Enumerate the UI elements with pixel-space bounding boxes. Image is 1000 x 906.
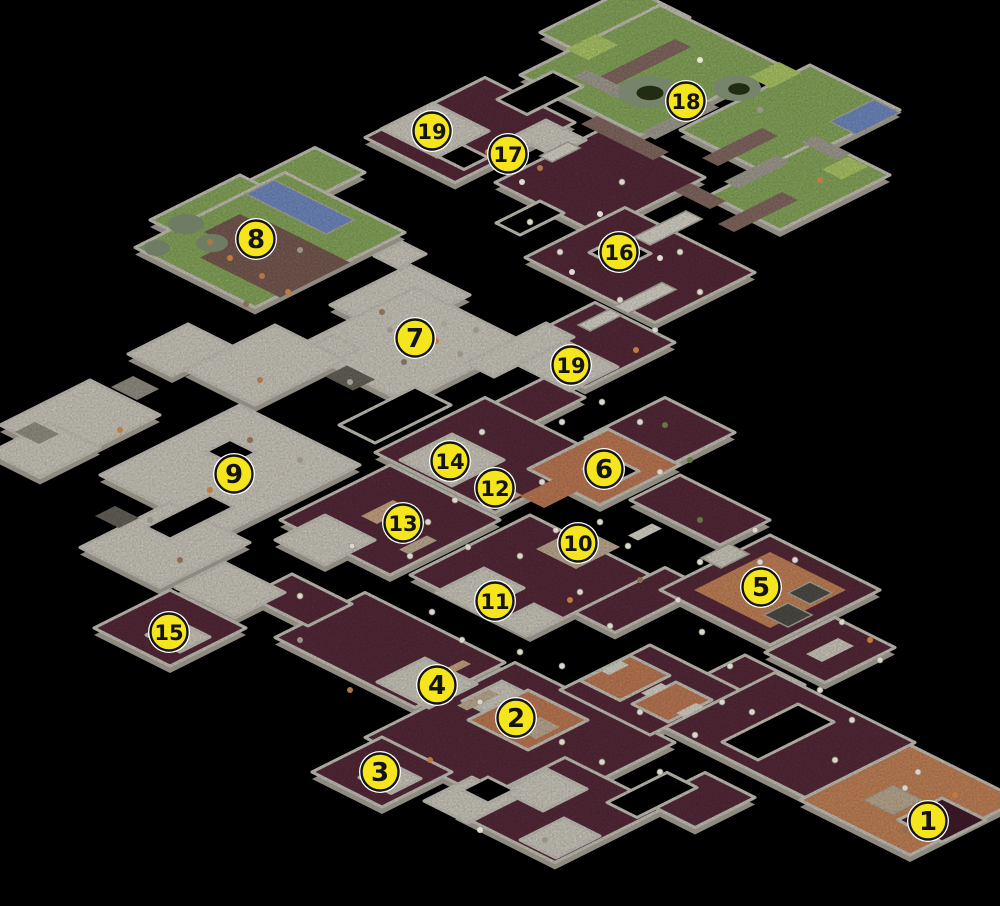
debris-5: [457, 351, 463, 357]
debris-12: [243, 301, 249, 307]
pillar-45: [792, 557, 798, 563]
debris-2: [441, 321, 447, 327]
debris-32: [817, 177, 823, 183]
pillar-23: [652, 327, 658, 333]
debris-45: [297, 637, 303, 643]
marker-label-4: 4: [428, 671, 446, 701]
pillar-25: [527, 219, 533, 225]
debris-35: [697, 517, 703, 523]
map-marker-10: 10: [557, 522, 599, 564]
region-room10-bed: [628, 524, 662, 541]
debris-41: [542, 837, 548, 843]
marker-label-8: 8: [247, 225, 265, 255]
debris-43: [427, 757, 433, 763]
pillar-12: [675, 597, 681, 603]
pillar-29: [477, 699, 483, 705]
pillar-50: [902, 785, 908, 791]
debris-3: [401, 359, 407, 365]
tree-garden-1-core: [637, 86, 664, 100]
pillar-1: [425, 519, 431, 525]
map-marker-19a: 19: [411, 110, 453, 152]
debris-38: [867, 637, 873, 643]
pillar-33: [719, 699, 725, 705]
map-marker-11: 11: [474, 580, 516, 622]
marker-label-1: 1: [919, 807, 937, 837]
map-marker-19b: 19: [550, 344, 592, 386]
pillar-43: [297, 593, 303, 599]
pillar-49: [832, 757, 838, 763]
pillar-19: [559, 419, 565, 425]
pillar-47: [692, 732, 698, 738]
debris-27: [257, 377, 263, 383]
marker-label-19a: 19: [417, 120, 446, 144]
map-svg: 1234567891011121314151617181919: [0, 0, 1000, 906]
debris-30: [697, 57, 703, 63]
pillar-24: [557, 249, 563, 255]
debris-9: [227, 255, 233, 261]
debris-29: [177, 557, 183, 563]
pillar-28: [697, 289, 703, 295]
marker-label-16: 16: [604, 241, 633, 265]
debris-24: [207, 487, 213, 493]
pillar-46: [637, 709, 643, 715]
pillar-4: [553, 527, 559, 533]
debris-31: [757, 107, 763, 113]
pillar-44: [752, 527, 758, 533]
pillar-0: [452, 497, 458, 503]
map-marker-13: 13: [382, 502, 424, 544]
map-marker-14: 14: [429, 440, 471, 482]
pillar-3: [517, 553, 523, 559]
debris-36: [662, 422, 668, 428]
pillar-38: [915, 769, 921, 775]
pillar-31: [599, 759, 605, 765]
marker-label-5: 5: [752, 573, 770, 603]
pillar-42: [407, 553, 413, 559]
marker-label-12: 12: [480, 477, 509, 501]
debris-28: [297, 457, 303, 463]
pillar-40: [577, 589, 583, 595]
marker-label-6: 6: [595, 455, 613, 485]
pillar-30: [559, 739, 565, 745]
pillar-17: [637, 419, 643, 425]
pillar-9: [517, 649, 523, 655]
map-marker-5: 5: [740, 566, 782, 608]
debris-16: [519, 179, 525, 185]
pillar-6: [625, 543, 631, 549]
debris-20: [657, 255, 663, 261]
marker-label-19b: 19: [556, 354, 585, 378]
debris-37: [687, 457, 693, 463]
debris-39: [902, 827, 908, 833]
pillar-37: [877, 657, 883, 663]
tree-garden-2-core: [728, 83, 750, 95]
debris-21: [597, 211, 603, 217]
marker-label-10: 10: [563, 532, 592, 556]
pillar-36: [839, 619, 845, 625]
map-marker-12: 12: [474, 467, 516, 509]
pillar-35: [697, 559, 703, 565]
debris-40: [952, 792, 958, 798]
pillar-26: [619, 179, 625, 185]
debris-14: [297, 247, 303, 253]
pillar-21: [349, 543, 355, 549]
pillar-48: [749, 709, 755, 715]
marker-label-11: 11: [480, 590, 509, 614]
pillar-2: [465, 544, 471, 550]
debris-25: [147, 517, 153, 523]
marker-label-9: 9: [225, 460, 243, 490]
marker-label-17: 17: [493, 143, 522, 167]
pillar-32: [657, 769, 663, 775]
pillar-41: [539, 479, 545, 485]
tree-poolgarden-3: [144, 240, 170, 256]
debris-19: [569, 269, 575, 275]
floor-layer: [0, 0, 1000, 863]
marker-label-7: 7: [406, 324, 424, 354]
map-marker-6: 6: [583, 448, 625, 490]
map-marker-3: 3: [359, 751, 401, 793]
map-marker-2: 2: [495, 697, 537, 739]
debris-23: [247, 437, 253, 443]
debris-0: [387, 327, 393, 333]
debris-26: [117, 427, 123, 433]
debris-7: [347, 379, 353, 385]
map-marker-7: 7: [394, 317, 436, 359]
debris-11: [285, 289, 291, 295]
pillar-20: [479, 429, 485, 435]
debris-6: [379, 309, 385, 315]
map-marker-8: 8: [235, 218, 277, 260]
map-marker-9: 9: [213, 453, 255, 495]
debris-42: [477, 827, 483, 833]
pillar-13: [699, 629, 705, 635]
marker-label-13: 13: [388, 512, 417, 536]
pillar-15: [817, 687, 823, 693]
map-marker-16: 16: [598, 231, 640, 273]
pillar-16: [849, 717, 855, 723]
marker-label-2: 2: [507, 704, 525, 734]
debris-8: [473, 327, 479, 333]
pillar-34: [757, 559, 763, 565]
marker-label-18: 18: [671, 90, 700, 114]
marker-label-3: 3: [371, 758, 389, 788]
marker-label-15: 15: [154, 621, 183, 645]
game-map: 1234567891011121314151617181919: [0, 0, 1000, 906]
debris-22: [633, 347, 639, 353]
map-marker-15: 15: [148, 611, 190, 653]
pillar-11: [607, 623, 613, 629]
pillar-14: [727, 663, 733, 669]
pillar-18: [599, 399, 605, 405]
tree-poolgarden-1: [168, 214, 204, 234]
debris-13: [207, 239, 213, 245]
map-marker-1: 1: [907, 800, 949, 842]
debris-10: [259, 273, 265, 279]
pillar-7: [429, 609, 435, 615]
pillar-10: [559, 663, 565, 669]
pillar-8: [459, 637, 465, 643]
marker-label-14: 14: [435, 450, 464, 474]
pillar-5: [597, 519, 603, 525]
debris-34: [637, 577, 643, 583]
map-marker-17: 17: [487, 133, 529, 175]
debris-33: [567, 597, 573, 603]
pillar-27: [677, 249, 683, 255]
map-marker-4: 4: [416, 664, 458, 706]
debris-44: [347, 687, 353, 693]
pillar-39: [657, 469, 663, 475]
debris-18: [537, 165, 543, 171]
map-marker-18: 18: [665, 80, 707, 122]
pillar-22: [617, 297, 623, 303]
